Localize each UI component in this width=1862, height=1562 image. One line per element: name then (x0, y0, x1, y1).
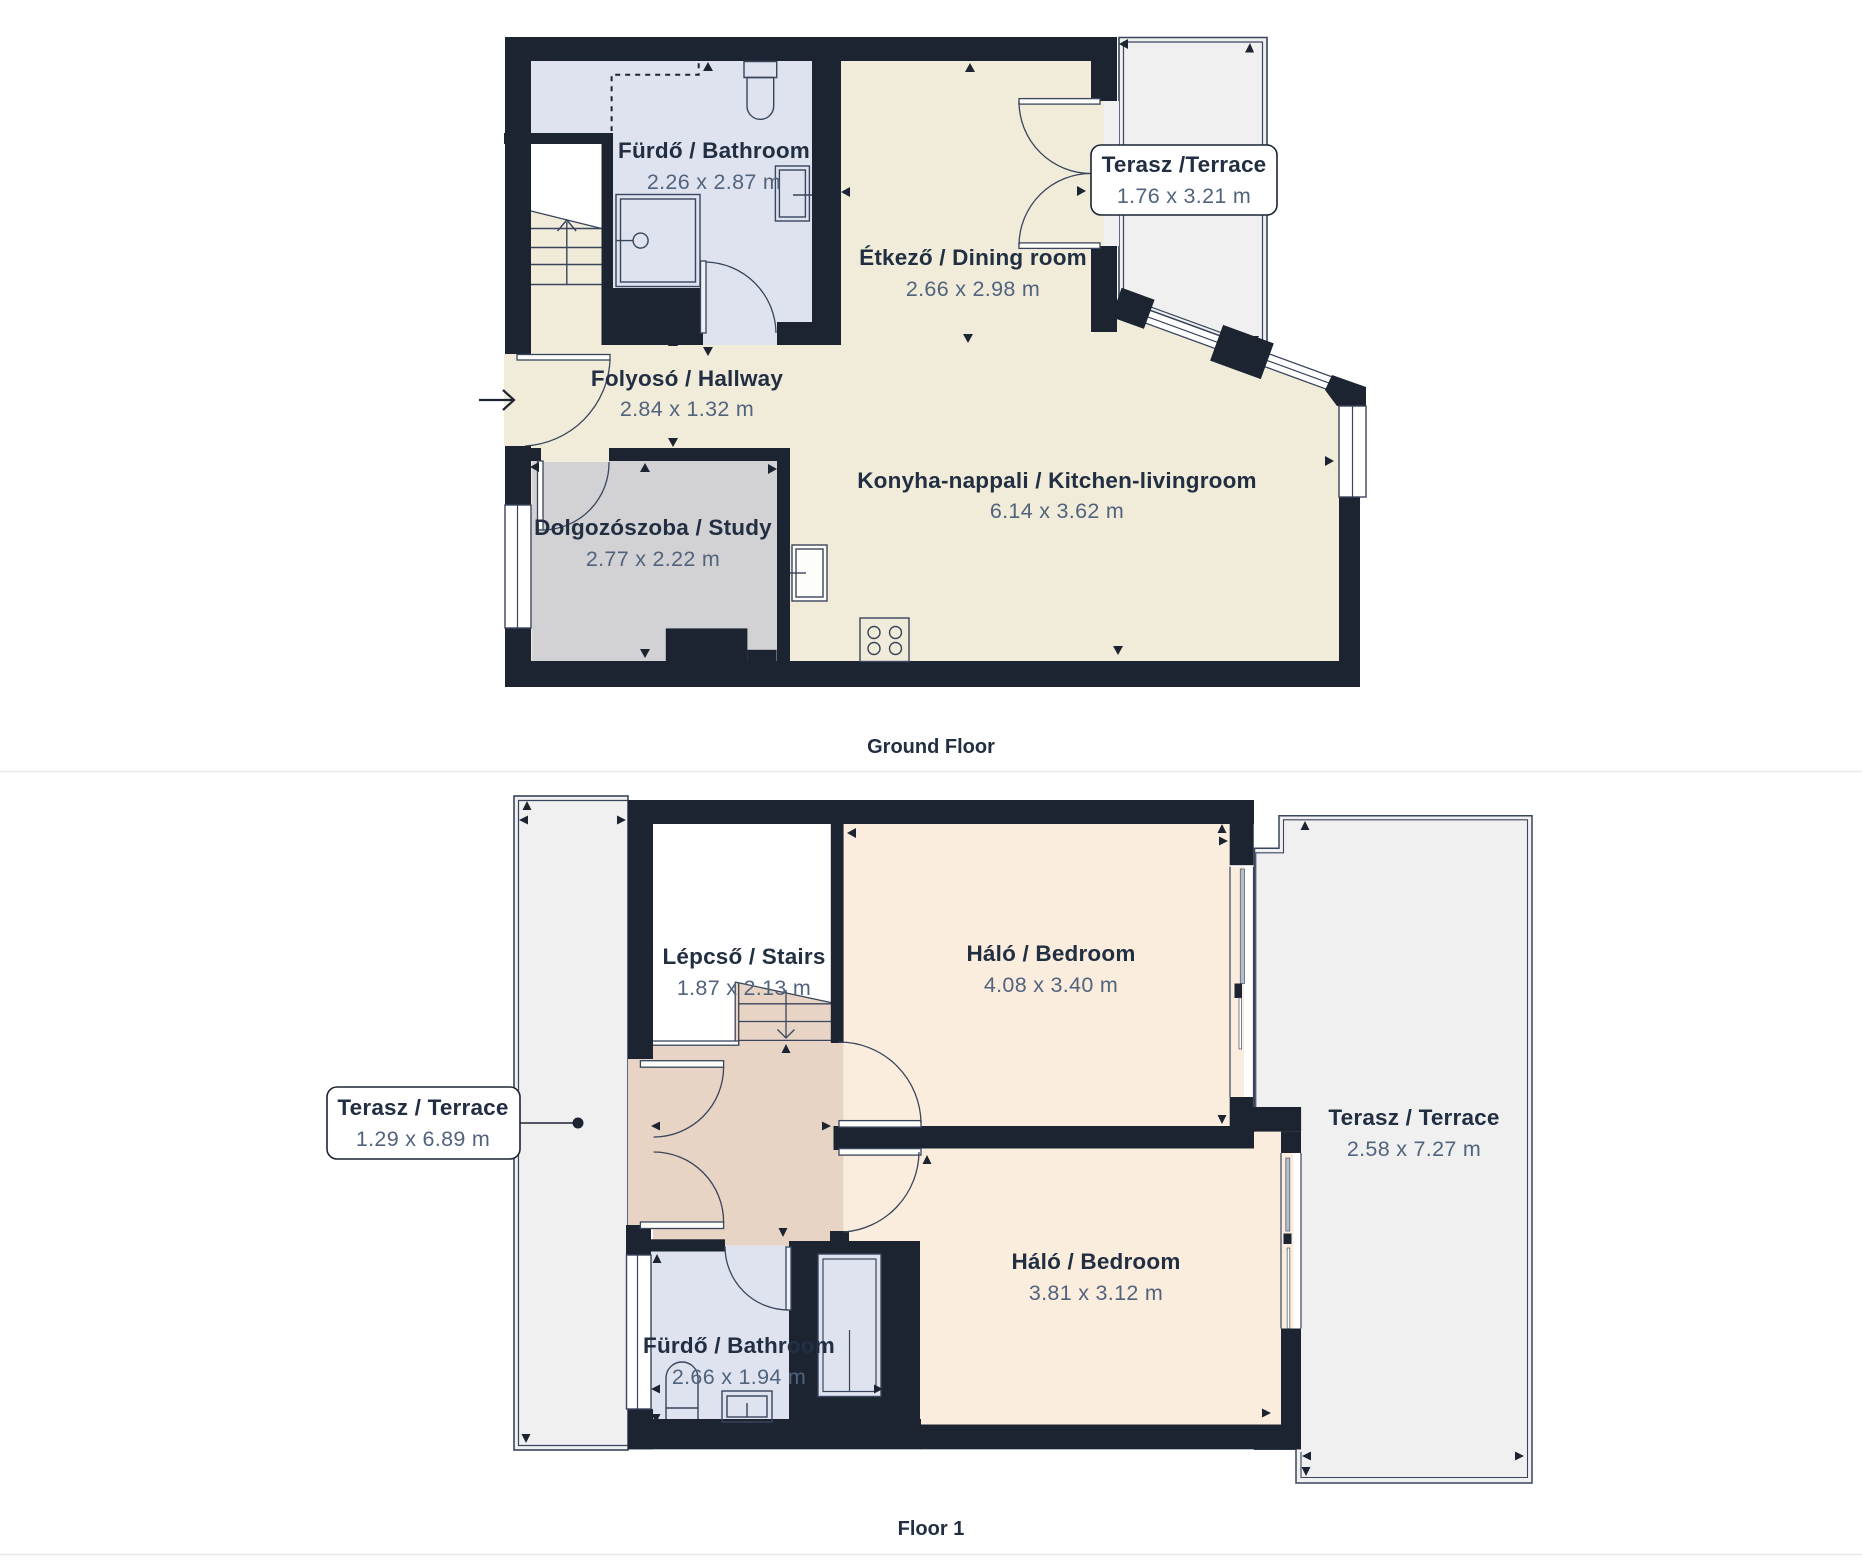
svg-text:2.58 x 7.27 m: 2.58 x 7.27 m (1347, 1137, 1481, 1161)
svg-text:Fürdő / Bathroom: Fürdő / Bathroom (643, 1333, 835, 1358)
svg-text:Floor 1: Floor 1 (898, 1518, 965, 1540)
svg-text:Ground Floor: Ground Floor (867, 736, 995, 758)
svg-text:Háló / Bedroom: Háló / Bedroom (966, 941, 1135, 966)
svg-text:Konyha-nappali / Kitchen-livin: Konyha-nappali / Kitchen-livingroom (857, 468, 1257, 493)
svg-text:3.81 x 3.12 m: 3.81 x 3.12 m (1029, 1281, 1163, 1305)
svg-text:Háló / Bedroom: Háló / Bedroom (1011, 1249, 1180, 1274)
svg-text:Terasz / Terrace: Terasz / Terrace (1328, 1105, 1499, 1130)
svg-text:Terasz /Terrace: Terasz /Terrace (1102, 152, 1267, 177)
svg-text:2.84 x 1.32 m: 2.84 x 1.32 m (620, 397, 754, 421)
svg-text:2.26 x 2.87 m: 2.26 x 2.87 m (647, 170, 781, 194)
svg-text:Dolgozószoba / Study: Dolgozószoba / Study (534, 515, 772, 540)
svg-text:2.66 x 1.94 m: 2.66 x 1.94 m (672, 1365, 806, 1389)
svg-text:4.08 x 3.40 m: 4.08 x 3.40 m (984, 973, 1118, 997)
svg-text:2.66 x 2.98 m: 2.66 x 2.98 m (906, 277, 1040, 301)
svg-text:Lépcső / Stairs: Lépcső / Stairs (662, 944, 825, 969)
svg-text:6.14 x 3.62 m: 6.14 x 3.62 m (990, 499, 1124, 523)
svg-text:Fürdő / Bathroom: Fürdő / Bathroom (618, 138, 810, 163)
svg-text:1.76 x 3.21 m: 1.76 x 3.21 m (1117, 184, 1251, 208)
svg-text:2.77 x 2.22 m: 2.77 x 2.22 m (586, 547, 720, 571)
svg-text:Terasz / Terrace: Terasz / Terrace (337, 1095, 508, 1120)
svg-text:Étkező / Dining room: Étkező / Dining room (859, 245, 1087, 270)
svg-text:1.87 x 2.13 m: 1.87 x 2.13 m (677, 976, 811, 1000)
svg-text:Folyosó / Hallway: Folyosó / Hallway (591, 366, 783, 391)
svg-text:1.29 x 6.89 m: 1.29 x 6.89 m (356, 1127, 490, 1151)
